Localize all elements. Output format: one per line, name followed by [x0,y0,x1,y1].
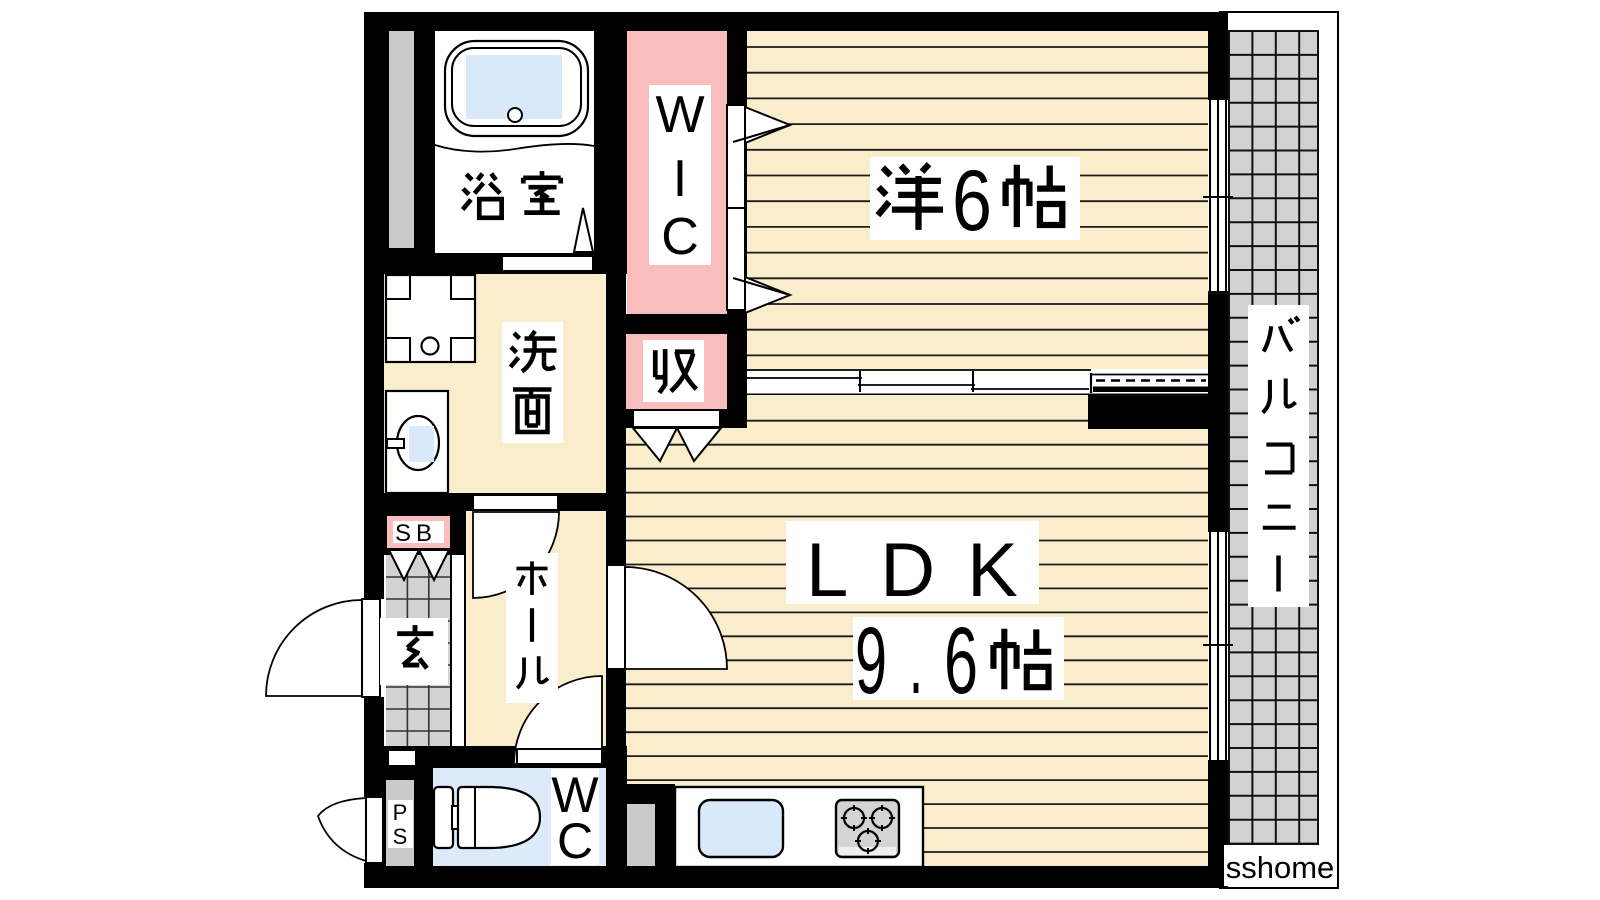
svg-text:LDK: LDK [806,528,1050,613]
svg-text:6: 6 [944,608,978,714]
svg-text:SB: SB [395,520,437,547]
svg-text:C: C [557,813,593,869]
svg-text:I: I [673,150,687,208]
svg-text:P: P [393,800,408,825]
svg-text:C: C [661,208,699,266]
svg-text:sshome: sshome [1226,850,1335,885]
svg-text:.: . [909,608,923,714]
svg-text:9: 9 [855,608,887,714]
svg-text:W: W [655,86,704,144]
svg-text:6: 6 [952,153,992,249]
svg-text:S: S [393,824,408,849]
